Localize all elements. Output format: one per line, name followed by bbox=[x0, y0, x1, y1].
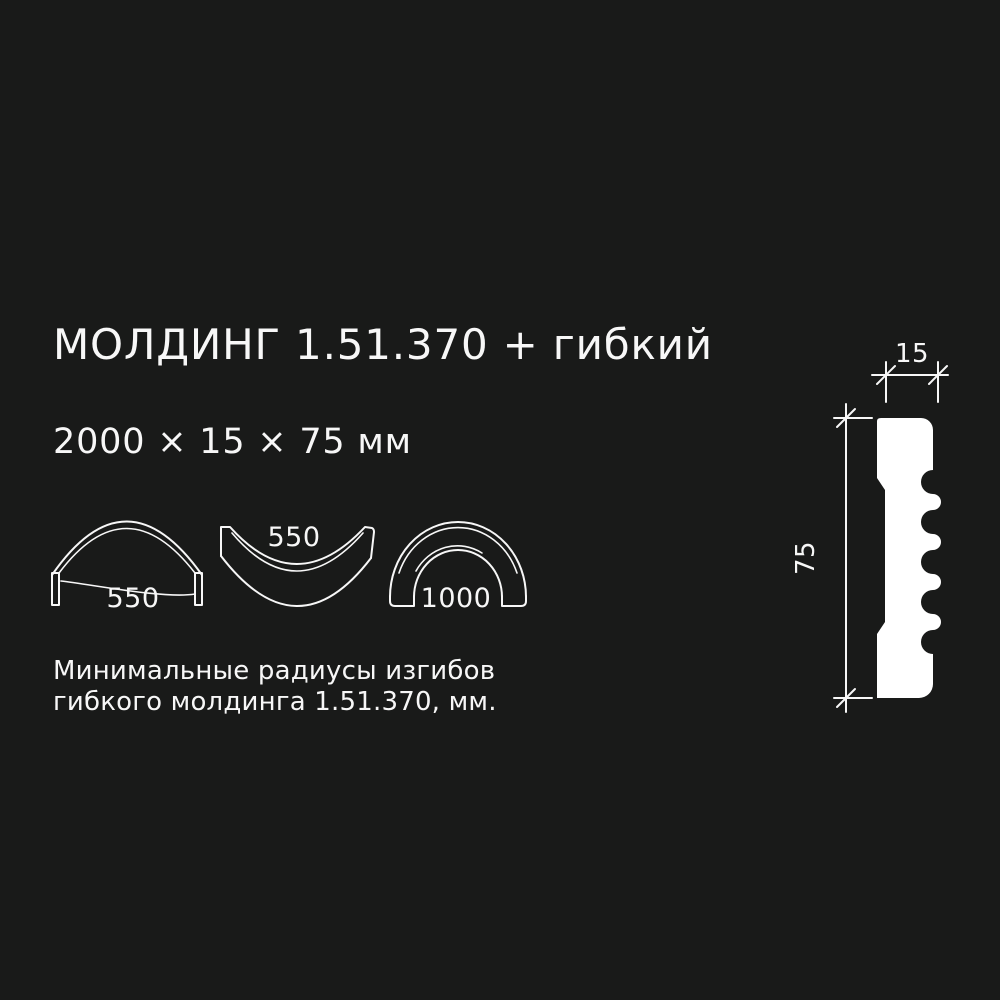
profile-height-label: 75 bbox=[791, 541, 821, 575]
profile-cross-section bbox=[877, 418, 941, 698]
bend-shape-arch-1000: 1000 bbox=[390, 522, 526, 614]
profile-shape bbox=[877, 418, 941, 698]
bend-shape-arch-550: 550 bbox=[52, 522, 202, 615]
bend-radius-label: 1000 bbox=[421, 583, 492, 614]
product-card: МОЛДИНГ 1.51.370 + гибкий 2000 × 15 × 75… bbox=[0, 0, 1000, 1000]
height-dimension: 75 bbox=[791, 404, 872, 712]
bend-radius-label: 550 bbox=[267, 522, 320, 553]
profile-width-label: 15 bbox=[895, 339, 929, 369]
bend-radius-label: 550 bbox=[106, 583, 159, 614]
bend-shape-trough-550: 550 bbox=[221, 522, 374, 606]
width-dimension: 15 bbox=[872, 339, 948, 402]
technical-drawing: 550 550 1000 bbox=[0, 0, 1000, 1000]
